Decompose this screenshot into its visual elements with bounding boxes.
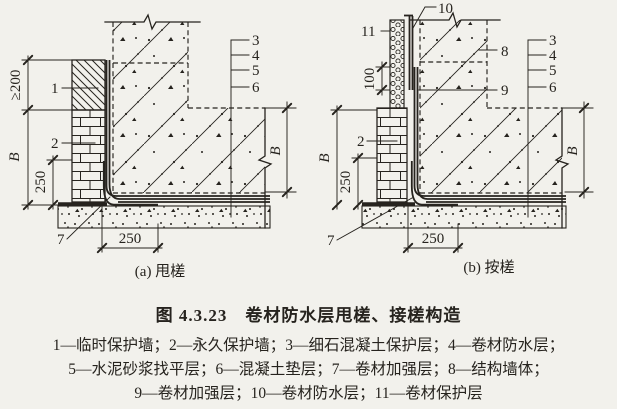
dim-corner-run-b: 250 bbox=[422, 231, 445, 247]
callout-2b: 2 bbox=[357, 134, 365, 150]
dim-top-height: ≥200 bbox=[8, 70, 24, 101]
callout-4: 4 bbox=[252, 48, 260, 64]
dimension-right-b: B bbox=[562, 102, 593, 198]
permanent-protection-wall bbox=[72, 110, 105, 202]
dim-wall-height: B bbox=[7, 152, 23, 161]
dimension-right: B bbox=[265, 102, 296, 198]
dim-corner-run: 250 bbox=[119, 231, 142, 247]
caption-b: (b) 按槎 bbox=[463, 259, 514, 276]
membrane-protection-layer bbox=[390, 20, 404, 108]
legend-line-1: 1—临时保护墙；2—永久保护墙；3—细石混凝土保护层；4—卷材防水层； bbox=[0, 333, 617, 355]
callout-4b: 4 bbox=[549, 48, 557, 64]
callout-1: 1 bbox=[51, 81, 59, 97]
dim-slab-depth-b: B bbox=[565, 146, 581, 155]
callout-2: 2 bbox=[51, 136, 59, 152]
callout-5: 5 bbox=[252, 63, 260, 79]
permanent-protection-wall-b bbox=[377, 108, 407, 202]
dim-lap: 100 bbox=[362, 68, 378, 91]
dim-corner-up: 250 bbox=[33, 171, 49, 194]
callout-9: 9 bbox=[501, 83, 509, 99]
callout-6: 6 bbox=[252, 80, 260, 96]
caption-a: (a) 甩槎 bbox=[135, 263, 185, 280]
figure-title: 图 4.3.23 卷材防水层甩槎、接槎构造 bbox=[0, 301, 617, 326]
callout-3: 3 bbox=[252, 33, 260, 49]
diagram-a: ≥200 B 250 B 3 4 5 6 1 bbox=[7, 15, 296, 280]
dim-wall-height-b: B bbox=[317, 153, 333, 162]
diagram-b: 100 B 250 B 3 4 5 6 bbox=[317, 1, 593, 276]
callout-3b: 3 bbox=[549, 33, 557, 49]
dim-corner-up-b: 250 bbox=[338, 171, 354, 194]
dimension-left: ≥200 B 250 bbox=[7, 56, 72, 209]
callout-7b: 7 bbox=[327, 233, 335, 249]
legend-line-2: 5—水泥砂浆找平层；6—混凝土垫层；7—卷材加强层；8—结构墙体； bbox=[0, 357, 617, 379]
callout-5b: 5 bbox=[549, 63, 557, 79]
legend-line-3: 9—卷材加强层；10—卷材防水层；11—卷材保护层 bbox=[0, 381, 617, 403]
callout-10: 10 bbox=[438, 1, 453, 17]
waterproofing-detail-figure: ≥200 B 250 B 3 4 5 6 1 bbox=[0, 0, 617, 296]
callout-7: 7 bbox=[57, 232, 65, 248]
callout-11: 11 bbox=[361, 24, 375, 40]
dim-slab-depth: B bbox=[268, 146, 284, 155]
callout-6b: 6 bbox=[549, 80, 557, 96]
temporary-protection-wall bbox=[72, 60, 105, 110]
callout-8: 8 bbox=[501, 44, 509, 60]
